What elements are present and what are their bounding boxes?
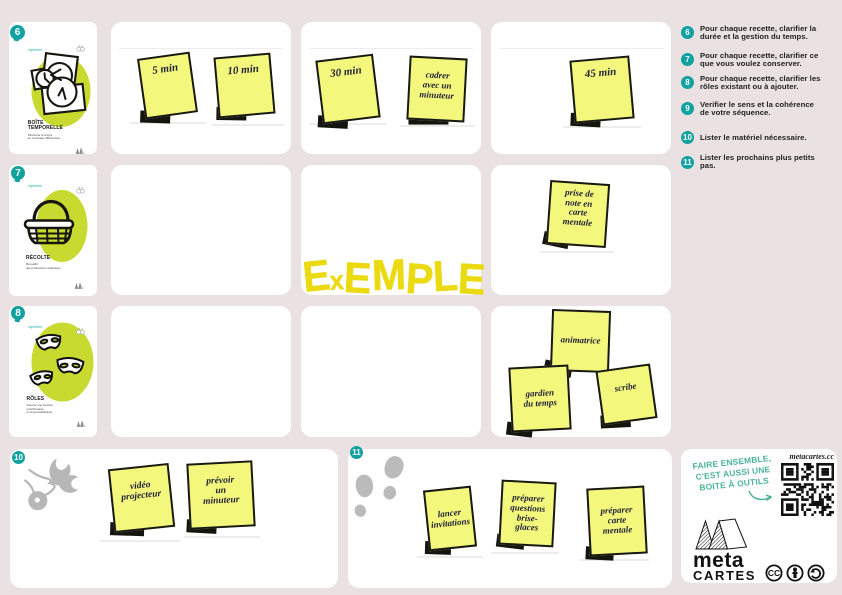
svg-text:CC: CC [768, 568, 780, 578]
